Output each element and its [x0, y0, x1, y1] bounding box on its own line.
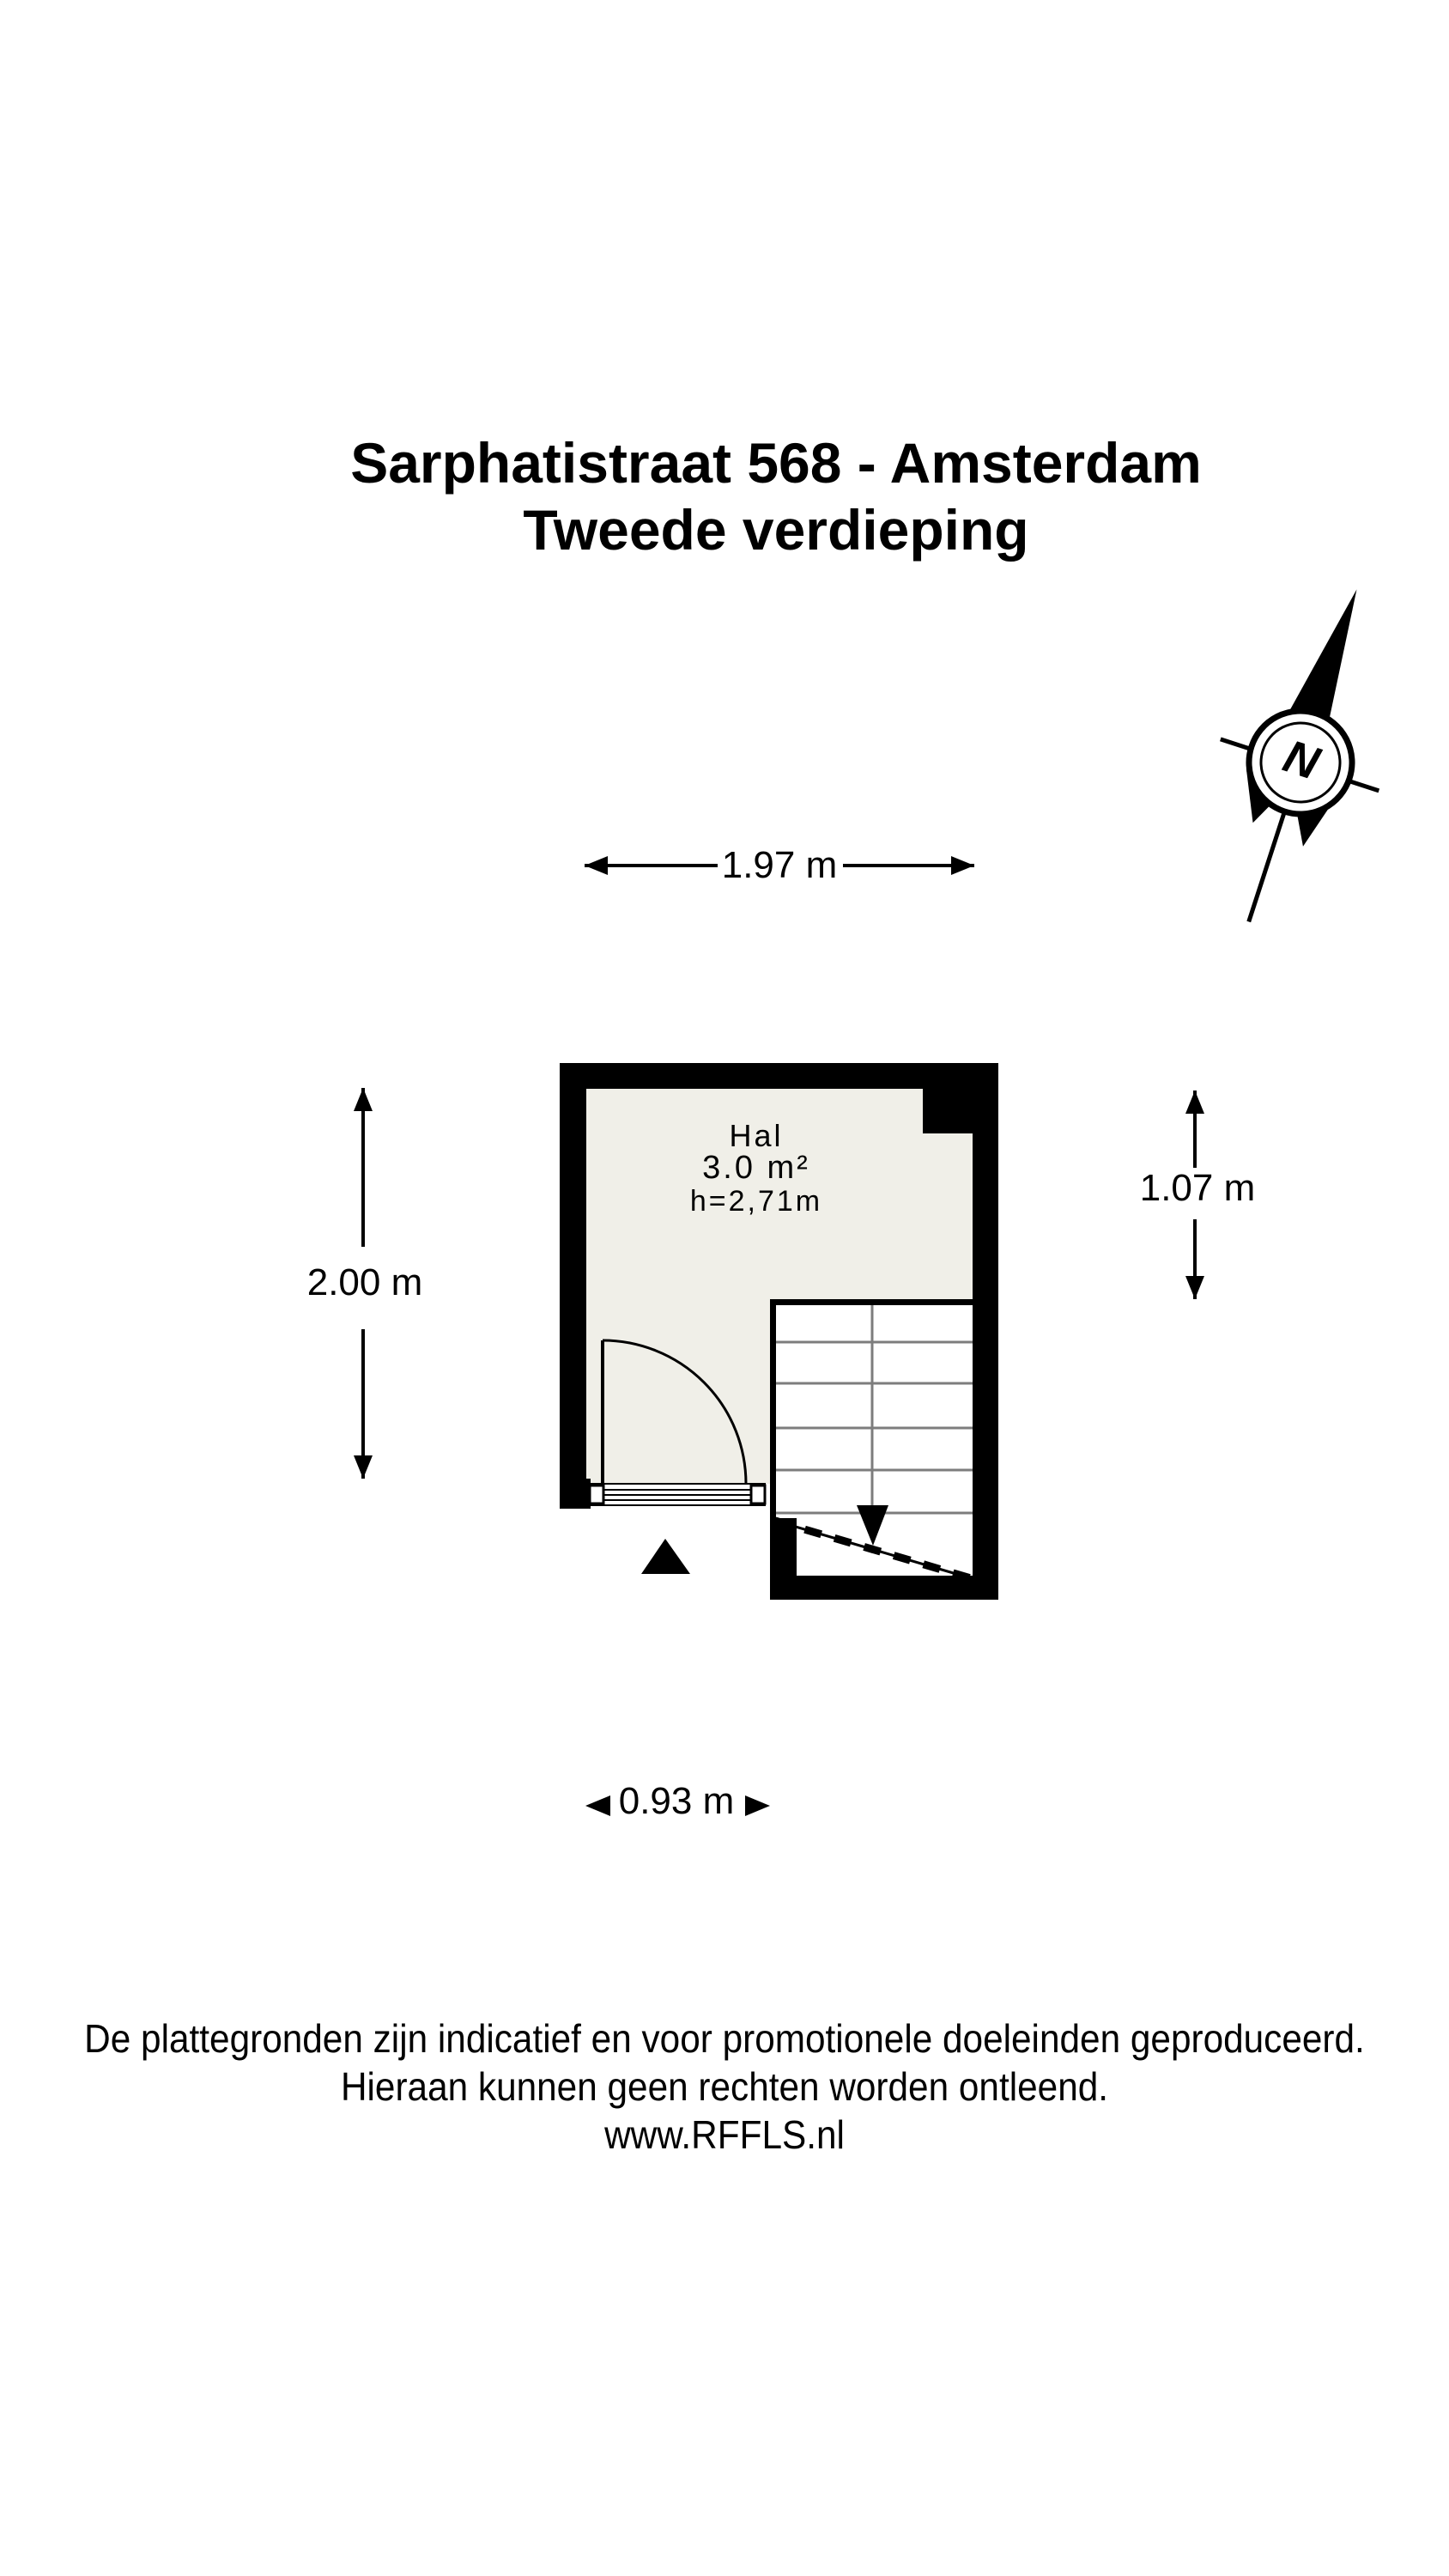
floorplan-drawing	[0, 0, 1449, 2576]
arrowhead-down	[354, 1455, 373, 1479]
entrance-arrow	[641, 1539, 690, 1574]
floorplan-page: { "title": { "line1": "Sarphatistraat 56…	[0, 0, 1449, 2576]
arrowhead-down	[1185, 1276, 1204, 1299]
wall-top-right-block	[923, 1063, 998, 1133]
arrowhead-left	[585, 856, 608, 875]
door-post-right	[751, 1485, 765, 1504]
stairwell-border-top	[770, 1299, 977, 1305]
footer-website: www.RFFLS.nl	[58, 2111, 1391, 2159]
arrowhead-up	[354, 1088, 373, 1111]
footer-line1: De plattegronden zijn indicatief en voor…	[58, 2014, 1391, 2063]
arrowhead-right	[951, 856, 974, 875]
page-title-line2: Tweede verdieping	[89, 501, 1449, 558]
footer-line2: Hieraan kunnen geen rechten worden ontle…	[58, 2063, 1391, 2111]
footer-disclaimer: De plattegronden zijn indicatief en voor…	[58, 2014, 1391, 2159]
wall-left-foot	[560, 1479, 591, 1509]
dimension-label-bottom: 0.93 m	[548, 1783, 805, 1820]
dimension-label-right: 1.07 m	[1069, 1170, 1326, 1207]
dimension-label-top: 1.97 m	[651, 847, 908, 884]
dimension-label-left: 2.00 m	[236, 1264, 494, 1302]
page-title-line1: Sarphatistraat 568 - Amsterdam	[89, 434, 1449, 491]
wall-left	[560, 1063, 586, 1484]
door-post-left	[590, 1485, 603, 1504]
room-name: Hal	[585, 1121, 928, 1151]
room-ceiling-height: h=2,71m	[585, 1187, 928, 1216]
wall-right	[973, 1133, 998, 1600]
arrowhead-up	[1185, 1091, 1204, 1114]
room-area: 3.0 m²	[585, 1151, 928, 1184]
